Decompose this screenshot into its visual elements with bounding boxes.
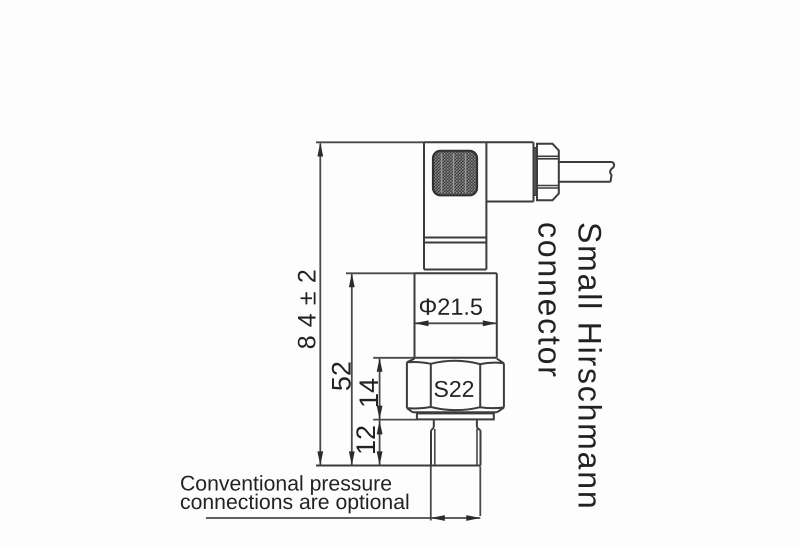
svg-text:12: 12: [351, 425, 381, 455]
svg-text:connector: connector: [532, 222, 568, 379]
svg-text:connections are optional: connections are optional: [180, 491, 410, 514]
svg-text:Small Hirschmann: Small Hirschmann: [572, 222, 608, 510]
svg-text:52: 52: [327, 361, 357, 391]
svg-text:S22: S22: [433, 376, 474, 402]
svg-text:84±2: 84±2: [294, 261, 322, 349]
svg-text:14: 14: [354, 378, 384, 408]
svg-text:Φ21.5: Φ21.5: [418, 294, 483, 320]
